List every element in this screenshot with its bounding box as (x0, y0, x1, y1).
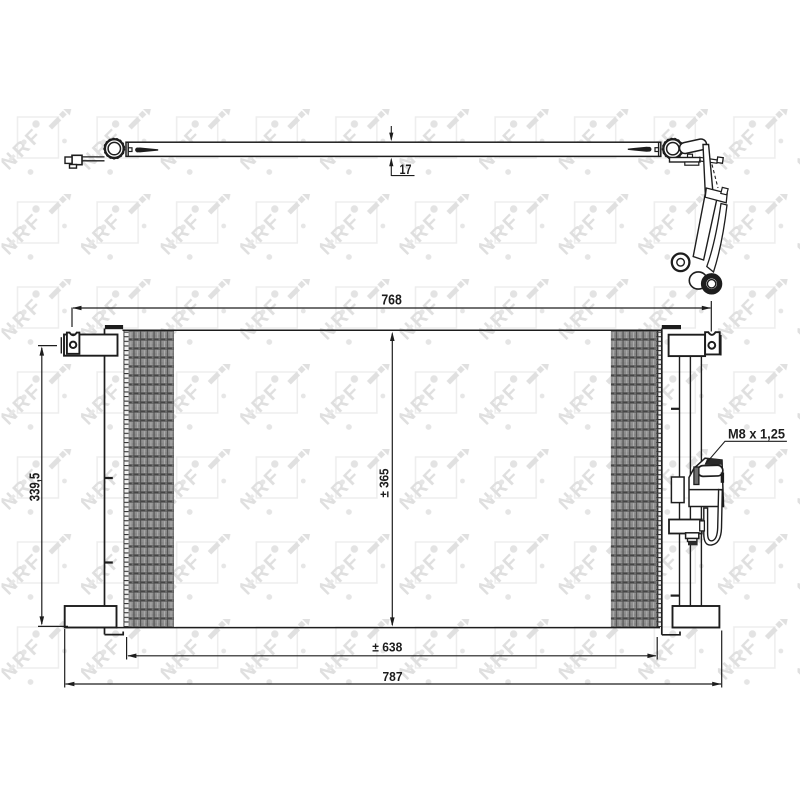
svg-text:± 365: ± 365 (378, 468, 392, 497)
svg-text:17: 17 (400, 162, 412, 177)
svg-text:787: 787 (383, 670, 403, 684)
svg-text:768: 768 (381, 293, 402, 309)
svg-text:M8 x 1,25: M8 x 1,25 (728, 427, 785, 442)
svg-text:339,5: 339,5 (27, 473, 44, 502)
svg-text:± 638: ± 638 (372, 641, 402, 655)
